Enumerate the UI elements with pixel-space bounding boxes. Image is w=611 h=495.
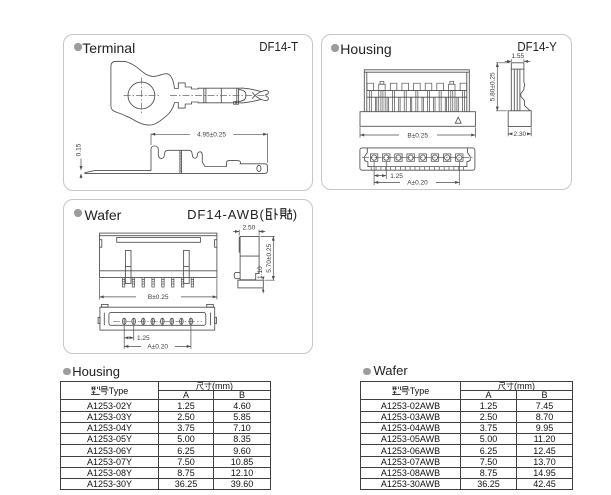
svg-text:B±0.25: B±0.25 [148, 294, 169, 301]
svg-text:4.95±0.25: 4.95±0.25 [197, 132, 226, 139]
svg-text:A±0.20: A±0.20 [407, 180, 428, 187]
svg-text:2.50: 2.50 [243, 225, 256, 232]
svg-text:2.30: 2.30 [513, 131, 526, 138]
svg-text:1.55: 1.55 [511, 53, 524, 60]
svg-text:0.15: 0.15 [76, 143, 83, 156]
svg-text:5.70±0.25: 5.70±0.25 [266, 243, 273, 272]
svg-text:1.25: 1.25 [390, 173, 403, 180]
svg-text:A±0.20: A±0.20 [147, 344, 168, 351]
svg-text:5.80±0.25: 5.80±0.25 [490, 72, 497, 101]
svg-text:1.10: 1.10 [257, 266, 264, 279]
svg-text:B±0.25: B±0.25 [407, 132, 428, 139]
svg-text:1.25: 1.25 [137, 335, 150, 342]
